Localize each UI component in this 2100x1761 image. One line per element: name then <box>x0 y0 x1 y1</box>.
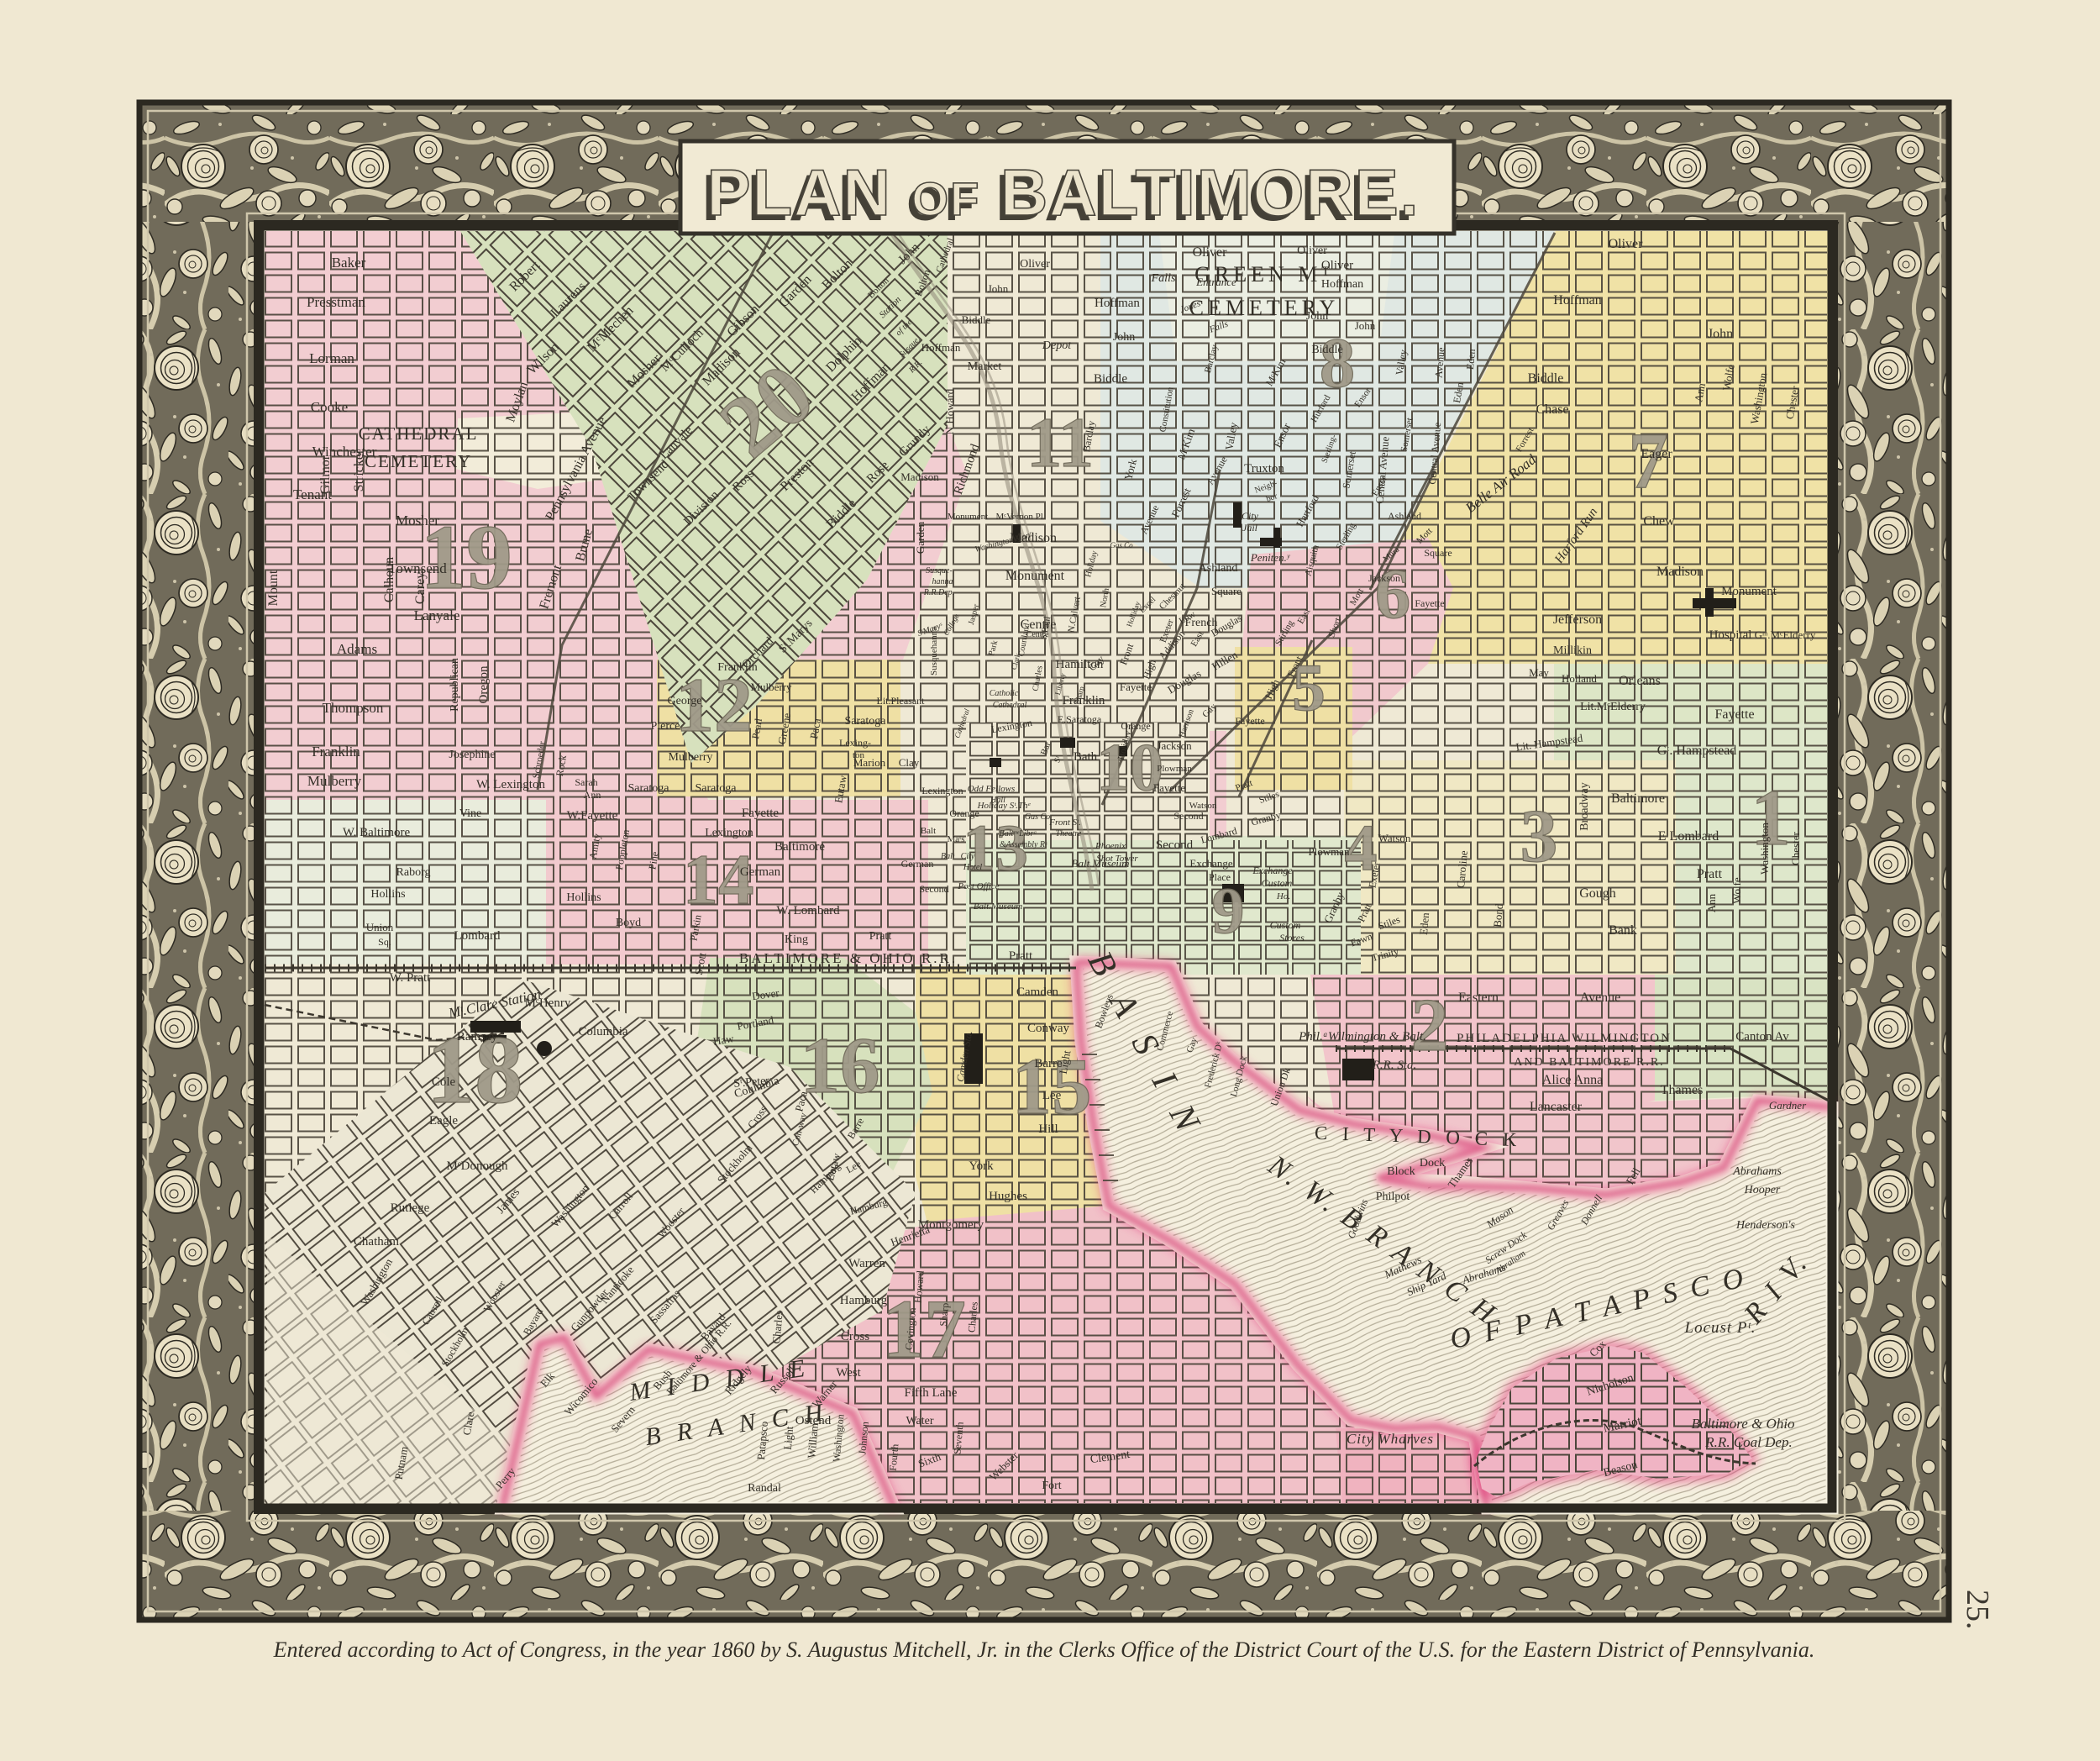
svg-text:CATHEDRAL: CATHEDRAL <box>359 423 479 444</box>
svg-text:Calhoun: Calhoun <box>382 557 396 602</box>
svg-text:W. Baltimore: W. Baltimore <box>343 826 411 839</box>
svg-text:Columbia: Columbia <box>578 1025 628 1038</box>
svg-text:Phil.ᵃWilmington & Balt.: Phil.ᵃWilmington & Balt. <box>1298 1030 1426 1043</box>
svg-text:Saratoga: Saratoga <box>696 782 738 795</box>
svg-text:Entered according to Act of Co: Entered according to Act of Congress, in… <box>273 1637 1815 1662</box>
svg-text:Gas Co: Gas Co <box>1025 812 1050 822</box>
svg-text:Place: Place <box>1209 871 1231 883</box>
svg-text:Chase: Chase <box>1536 402 1568 417</box>
svg-text:3: 3 <box>1520 795 1558 878</box>
svg-text:BALTIMORE & OHIO R.R.: BALTIMORE & OHIO R.R. <box>739 950 958 966</box>
svg-text:15: 15 <box>1012 1042 1092 1131</box>
svg-text:Presstman: Presstman <box>307 294 365 310</box>
svg-text:Gilmor: Gilmor <box>318 455 333 494</box>
svg-text:Hoffman: Hoffman <box>1321 278 1363 291</box>
svg-text:Mulberry: Mulberry <box>669 751 713 764</box>
svg-text:Locust Pᵗ.: Locust Pᵗ. <box>1684 1319 1756 1337</box>
svg-text:Oliver: Oliver <box>1297 244 1327 257</box>
svg-text:Baltimore: Baltimore <box>774 840 825 854</box>
svg-text:BaltᵐᵉLibrᵃ: BaltᵐᵉLibrᵃ <box>1000 829 1037 838</box>
svg-text:Avenue: Avenue <box>1580 991 1621 1005</box>
svg-text:Boyd: Boyd <box>616 917 641 929</box>
svg-text:Vine: Vine <box>459 807 481 820</box>
svg-text:Saratoga: Saratoga <box>628 782 670 795</box>
svg-text:Lexington: Lexington <box>705 827 753 839</box>
svg-text:Garden: Garden <box>914 521 927 554</box>
svg-text:Eastern: Eastern <box>1458 991 1499 1005</box>
svg-text:City Wharves: City Wharves <box>1347 1431 1434 1447</box>
svg-text:Baltimore: Baltimore <box>1611 791 1665 806</box>
svg-text:Pratt: Pratt <box>1009 949 1033 963</box>
svg-text:Gardner: Gardner <box>1769 1099 1807 1112</box>
svg-text:E.Saratoga: E.Saratoga <box>1058 713 1102 725</box>
svg-text:W. Lexington: W. Lexington <box>476 778 545 791</box>
svg-text:Plowman: Plowman <box>1308 845 1350 858</box>
svg-text:Franklin: Franklin <box>1063 694 1105 707</box>
svg-text:Monument: Monument <box>1721 585 1777 598</box>
svg-text:Carey: Carey <box>413 572 428 604</box>
svg-text:Plowman: Plowman <box>1157 764 1192 774</box>
svg-text:Stricker: Stricker <box>352 449 366 492</box>
svg-text:Sharp: Sharp <box>937 1302 951 1327</box>
svg-text:Fifth Lane: Fifth Lane <box>905 1386 958 1400</box>
svg-text:Fourth: Fourth <box>887 1443 901 1471</box>
svg-text:9: 9 <box>1212 874 1245 947</box>
svg-text:Eden: Eden <box>1464 349 1478 371</box>
svg-text:West: West <box>836 1366 861 1380</box>
svg-text:Conway: Conway <box>1027 1022 1069 1035</box>
svg-text:Second: Second <box>919 883 948 895</box>
svg-text:Exchange: Exchange <box>1252 865 1293 876</box>
svg-text:George: George <box>668 695 702 707</box>
svg-text:2: 2 <box>1411 984 1449 1067</box>
svg-text:Broadway: Broadway <box>1578 782 1591 831</box>
svg-text:Front Sᵗ.: Front Sᵗ. <box>1048 817 1081 828</box>
svg-text:Mosher: Mosher <box>396 513 439 528</box>
svg-text:Block: Block <box>1387 1165 1415 1178</box>
svg-text:Ann: Ann <box>1705 893 1718 912</box>
svg-text:Chew: Chew <box>1643 514 1675 528</box>
svg-text:Monument: Monument <box>1005 569 1065 583</box>
svg-text:Odd Fellows: Odd Fellows <box>968 784 1016 794</box>
svg-text:AND BALTIMORE R.R.: AND BALTIMORE R.R. <box>1514 1056 1664 1069</box>
svg-text:Exchange: Exchange <box>1189 857 1232 870</box>
svg-text:Bank: Bank <box>1609 923 1637 938</box>
svg-text:Hughes: Hughes <box>989 1190 1027 1203</box>
svg-text:R.R. Coal Dep.: R.R. Coal Dep. <box>1704 1434 1792 1450</box>
svg-text:Cooke: Cooke <box>311 399 348 415</box>
svg-text:Pierce: Pierce <box>651 720 680 733</box>
svg-text:King: King <box>785 933 808 946</box>
svg-text:Baker: Baker <box>332 255 366 271</box>
svg-text:Dock: Dock <box>1420 1157 1445 1170</box>
svg-text:Mount: Mount <box>266 570 281 606</box>
svg-text:Eagle: Eagle <box>429 1114 458 1128</box>
svg-text:6: 6 <box>1375 555 1411 633</box>
svg-text:Light: Light <box>781 1426 795 1451</box>
svg-text:Madison: Madison <box>1656 565 1704 579</box>
svg-text:Lit.MᶜElderry: Lit.MᶜElderry <box>1580 701 1646 713</box>
svg-text:Water: Water <box>906 1415 933 1427</box>
svg-text:Balt.Museum: Balt.Museum <box>974 902 1022 912</box>
svg-text:W. Lombard: W. Lombard <box>776 904 840 917</box>
svg-text:Hall: Hall <box>990 796 1005 805</box>
svg-text:Orange: Orange <box>949 807 979 819</box>
svg-text:Lorman: Lorman <box>309 350 354 366</box>
svg-text:Gᵗ. Hampstead: Gᵗ. Hampstead <box>1657 744 1737 758</box>
svg-text:W. Pratt: W. Pratt <box>390 971 431 985</box>
svg-text:Hill: Hill <box>1038 1122 1058 1136</box>
svg-text:Cole: Cole <box>432 1075 456 1089</box>
svg-text:Fayette: Fayette <box>1415 597 1444 609</box>
svg-text:City: City <box>961 852 975 861</box>
svg-text:Mulberry: Mulberry <box>307 773 362 789</box>
svg-text:PHILADELPHIA WILMINGTON: PHILADELPHIA WILMINGTON <box>1457 1032 1672 1045</box>
svg-text:Ashland: Ashland <box>1388 510 1421 522</box>
svg-text:Clay: Clay <box>899 756 920 769</box>
svg-text:York: York <box>969 1159 994 1173</box>
svg-text:Shot Tower: Shot Tower <box>1096 854 1138 864</box>
svg-text:Custom: Custom <box>1270 919 1301 931</box>
svg-text:Watson: Watson <box>1378 832 1411 844</box>
svg-text:Ho.: Ho. <box>1276 891 1290 902</box>
svg-text:Truxton: Truxton <box>1244 462 1284 476</box>
svg-text:Oliver: Oliver <box>1321 259 1353 272</box>
svg-text:Fayette: Fayette <box>1120 681 1152 693</box>
svg-text:Centre: Centre <box>1026 630 1049 639</box>
svg-text:Custom: Custom <box>1262 877 1293 889</box>
svg-text:Rutlege: Rutlege <box>391 1201 430 1215</box>
svg-text:Biddle: Biddle <box>1311 344 1342 356</box>
svg-text:John: John <box>1355 319 1376 332</box>
svg-text:Catholic: Catholic <box>990 689 1019 698</box>
svg-text:Wolfe: Wolfe <box>1730 877 1743 904</box>
svg-text:Chatham: Chatham <box>354 1235 399 1248</box>
svg-text:Biddle: Biddle <box>1094 372 1127 386</box>
svg-text:Sq.: Sq. <box>378 936 391 948</box>
svg-text:Falls: Falls <box>1151 272 1176 285</box>
svg-text:Ann: Ann <box>584 789 601 801</box>
svg-text:Depot: Depot <box>1042 339 1072 352</box>
svg-text:Abrahams: Abrahams <box>1732 1165 1782 1178</box>
svg-text:Camden: Camden <box>1016 986 1058 999</box>
svg-text:25.: 25. <box>1960 1590 1995 1630</box>
svg-text:Jackson: Jackson <box>1368 572 1400 584</box>
svg-text:MᶜHenry: MᶜHenry <box>525 996 571 1010</box>
svg-text:Hollins: Hollins <box>370 888 405 901</box>
svg-text:PLAN OF BALTIMORE.: PLAN OF BALTIMORE. <box>707 155 1420 229</box>
svg-text:Franklin: Franklin <box>312 744 360 760</box>
svg-text:Pratt: Pratt <box>1697 867 1723 881</box>
svg-text:Ashland: Ashland <box>1199 562 1238 575</box>
svg-text:Hoffman: Hoffman <box>1553 293 1601 308</box>
svg-text:Stores: Stores <box>1279 932 1305 944</box>
svg-text:Madison: Madison <box>900 470 939 483</box>
svg-text:Hollins: Hollins <box>566 891 601 904</box>
svg-text:Adams: Adams <box>337 641 377 657</box>
svg-text:Lee: Lee <box>1042 1089 1062 1102</box>
svg-text:MᶜDonough: MᶜDonough <box>446 1159 508 1173</box>
svg-text:14: 14 <box>683 840 754 919</box>
svg-text:Square: Square <box>1424 547 1452 559</box>
svg-text:R.R.Dep.: R.R.Dep. <box>923 588 954 597</box>
svg-text:Second: Second <box>1156 838 1194 852</box>
svg-text:Canton Av: Canton Av <box>1735 1030 1789 1043</box>
svg-text:Fayette: Fayette <box>1153 781 1185 794</box>
svg-text:Lanyale: Lanyale <box>414 607 460 623</box>
svg-text:German: German <box>901 858 934 870</box>
svg-text:Franklin: Franklin <box>717 661 757 674</box>
svg-text:Jail: Jail <box>1242 522 1258 534</box>
svg-text:Monument: Monument <box>948 512 988 522</box>
svg-text:Alice Anna: Alice Anna <box>1542 1073 1603 1087</box>
svg-text:Biddle: Biddle <box>1528 371 1564 386</box>
svg-text:Cross: Cross <box>841 1330 869 1343</box>
svg-text:Orleans: Orleans <box>1619 674 1661 688</box>
svg-text:City: City <box>1242 510 1259 522</box>
svg-text:Gᵐ.MᶜElderry: Gᵐ.MᶜElderry <box>1755 628 1816 641</box>
svg-text:Lombard: Lombard <box>454 929 501 943</box>
svg-text:Warren: Warren <box>848 1257 885 1270</box>
svg-text:Saratoga: Saratoga <box>845 715 887 728</box>
svg-text:Thompson: Thompson <box>323 700 384 716</box>
svg-text:Washington: Washington <box>1758 823 1771 875</box>
svg-text:Hamburg: Hamburg <box>840 1294 888 1307</box>
svg-text:Oliver: Oliver <box>1020 258 1050 271</box>
svg-text:Entrance: Entrance <box>1195 276 1236 288</box>
svg-text:Square: Square <box>1211 585 1242 597</box>
svg-text:German: German <box>740 865 781 879</box>
svg-text:Thames: Thames <box>1661 1083 1704 1097</box>
svg-text:Fort: Fort <box>1042 1480 1061 1492</box>
svg-text:Holland: Holland <box>1562 672 1597 685</box>
svg-text:Susquehanna: Susquehanna <box>929 627 939 675</box>
svg-text:Oliver: Oliver <box>1609 237 1644 251</box>
svg-text:Market: Market <box>968 360 1002 373</box>
svg-text:1: 1 <box>1751 773 1791 862</box>
svg-text:N Howard: N Howard <box>943 388 956 434</box>
svg-text:8: 8 <box>1320 323 1356 402</box>
svg-text:Cathedral: Cathedral <box>993 701 1027 710</box>
svg-text:hanna: hanna <box>932 577 953 586</box>
svg-text:Henderson's: Henderson's <box>1735 1219 1795 1232</box>
svg-text:Randal: Randal <box>748 1482 781 1495</box>
svg-text:Pratt: Pratt <box>869 930 892 943</box>
svg-text:Post Office: Post Office <box>957 881 999 891</box>
svg-text:ton: ton <box>853 750 865 760</box>
svg-text:Gas Co: Gas Co <box>1110 541 1133 549</box>
svg-text:Eden: Eden <box>1417 912 1431 935</box>
svg-text:Susque-: Susque- <box>926 566 953 576</box>
svg-text:John: John <box>1113 331 1135 344</box>
svg-text:Theatre: Theatre <box>1056 829 1082 838</box>
svg-text:Second: Second <box>1173 810 1203 822</box>
svg-text:Phoenix: Phoenix <box>1095 841 1126 851</box>
svg-text:Sarah: Sarah <box>575 776 597 788</box>
svg-text:Jackson: Jackson <box>1157 739 1192 752</box>
svg-text:Maᵗs: Maᵗs <box>947 834 964 844</box>
svg-text:Raborg: Raborg <box>396 866 431 879</box>
svg-text:Balˢ: Balˢ <box>941 852 955 861</box>
svg-text:CEMETERY: CEMETERY <box>365 451 472 471</box>
svg-text:W.Fayette: W.Fayette <box>567 809 618 823</box>
svg-text:Lexing-: Lexing- <box>839 737 871 749</box>
svg-text:E Lombard: E Lombard <box>1658 829 1719 844</box>
svg-text:Fayette: Fayette <box>1235 715 1264 727</box>
svg-text:Gough: Gough <box>1579 886 1616 901</box>
svg-text:Oliver: Oliver <box>1193 245 1228 260</box>
svg-text:Republican: Republican <box>449 658 461 712</box>
svg-text:Bath: Bath <box>1074 750 1098 764</box>
svg-text:Oregon: Oregon <box>477 665 491 703</box>
svg-text:Lit.Pleasant: Lit.Pleasant <box>877 695 926 707</box>
svg-text:Fayette: Fayette <box>1714 707 1754 722</box>
svg-text:Hoffman: Hoffman <box>1095 297 1140 310</box>
svg-text:Lancaster: Lancaster <box>1530 1100 1583 1114</box>
svg-text:16: 16 <box>801 1021 880 1110</box>
svg-text:May: May <box>1529 666 1549 679</box>
svg-text:Orange: Orange <box>1121 720 1150 732</box>
svg-text:MᶜVernon Pl.: MᶜVernon Pl. <box>995 512 1045 522</box>
svg-text:Watson: Watson <box>1189 801 1217 811</box>
svg-text:Hotel: Hotel <box>963 863 982 872</box>
svg-text:Lexington: Lexington <box>921 785 963 796</box>
svg-text:Hoffman: Hoffman <box>921 341 961 354</box>
svg-text:Bond: Bond <box>1491 902 1505 928</box>
svg-text:Eager: Eager <box>1641 447 1672 461</box>
svg-text:Chester: Chester <box>1789 831 1802 865</box>
svg-text:Ramsay: Ramsay <box>457 1030 498 1043</box>
svg-text:John: John <box>1306 310 1328 323</box>
svg-text:Philpot: Philpot <box>1376 1191 1410 1203</box>
svg-text:Baltimore & Ohio: Baltimore & Ohio <box>1691 1416 1794 1432</box>
svg-text:Jefferson: Jefferson <box>1553 612 1602 627</box>
svg-text:Mulberry: Mulberry <box>750 681 792 693</box>
svg-text:John: John <box>988 282 1009 295</box>
svg-text:Hooper: Hooper <box>1744 1184 1781 1196</box>
svg-text:&Assembly Rˢ: &Assembly Rˢ <box>1000 840 1047 849</box>
svg-text:Hospital: Hospital <box>1709 628 1752 642</box>
svg-text:R.R. Sta.: R.R. Sta. <box>1372 1059 1417 1072</box>
svg-text:Union: Union <box>366 921 394 933</box>
svg-text:Josephine: Josephine <box>449 749 495 761</box>
svg-text:Fayette: Fayette <box>742 807 779 820</box>
svg-text:Millikin: Millikin <box>1553 644 1592 657</box>
svg-text:Balt: Balt <box>921 826 936 836</box>
svg-text:John: John <box>1708 327 1733 341</box>
svg-text:Biddle: Biddle <box>962 313 991 326</box>
svg-text:Peniten.ʸ: Peniten.ʸ <box>1250 551 1290 564</box>
